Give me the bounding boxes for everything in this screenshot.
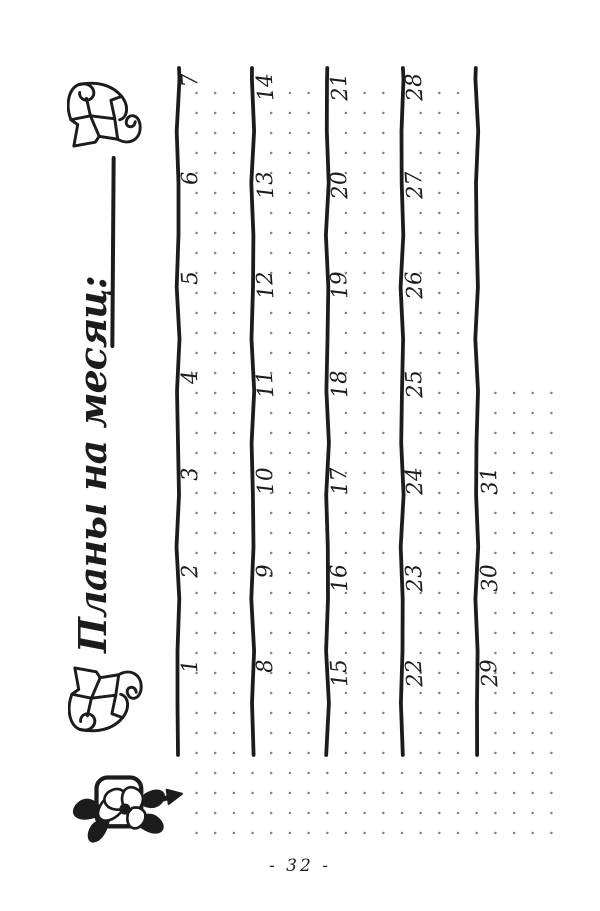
- corner-knot-left-icon: [68, 665, 146, 743]
- day-number: 7: [180, 72, 207, 143]
- day-number: 19: [329, 270, 356, 341]
- day-number: 21: [329, 72, 356, 143]
- page-title: Планы на месяц:: [70, 276, 115, 653]
- day-number: 4: [180, 369, 207, 440]
- day-number: 5: [180, 270, 207, 341]
- day-number: 6: [180, 170, 207, 241]
- day-number: 26: [404, 270, 431, 341]
- day-number: 14: [254, 72, 281, 143]
- day-number: 29: [478, 658, 505, 729]
- day-number: 23: [404, 563, 431, 634]
- day-number: 27: [404, 170, 431, 241]
- corner-knot-right-icon: [67, 71, 145, 149]
- day-number: 18: [329, 369, 356, 440]
- day-number: 1: [180, 658, 207, 729]
- day-number: 22: [404, 658, 431, 729]
- day-number: 30: [478, 563, 505, 634]
- page-number: - 32 -: [0, 856, 600, 876]
- day-number: 10: [254, 466, 281, 537]
- day-number: 20: [329, 170, 356, 241]
- rotated-page-content: Планы на месяц: 123456789101112131415161…: [0, 0, 600, 911]
- planner-page: Планы на месяц: 123456789101112131415161…: [0, 0, 600, 911]
- day-number: 12: [254, 270, 281, 341]
- day-number: 25: [404, 369, 431, 440]
- day-number: 9: [254, 563, 281, 634]
- day-number: 15: [329, 658, 356, 729]
- day-number: 16: [329, 563, 356, 634]
- day-number: 8: [254, 658, 281, 729]
- day-number: 28: [404, 72, 431, 143]
- day-number: 17: [329, 466, 356, 537]
- day-number: 31: [478, 466, 505, 537]
- day-number: 11: [254, 369, 281, 440]
- day-number: 24: [404, 466, 431, 537]
- day-number: 13: [254, 170, 281, 241]
- day-number: 3: [180, 466, 207, 537]
- day-number: 2: [180, 563, 207, 634]
- lily-flower-icon: [66, 765, 186, 849]
